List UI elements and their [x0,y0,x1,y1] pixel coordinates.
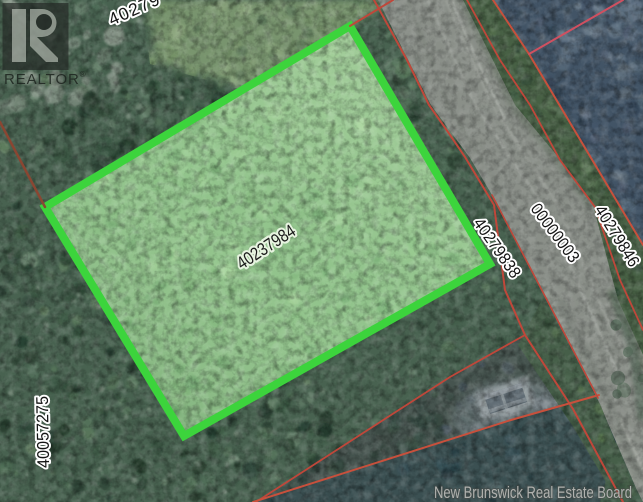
svg-text:New Brunswick Real Estate Boar: New Brunswick Real Estate Board [434,484,632,502]
svg-text:REALTOR®: REALTOR® [4,70,87,88]
svg-text:40057275: 40057275 [33,396,53,468]
